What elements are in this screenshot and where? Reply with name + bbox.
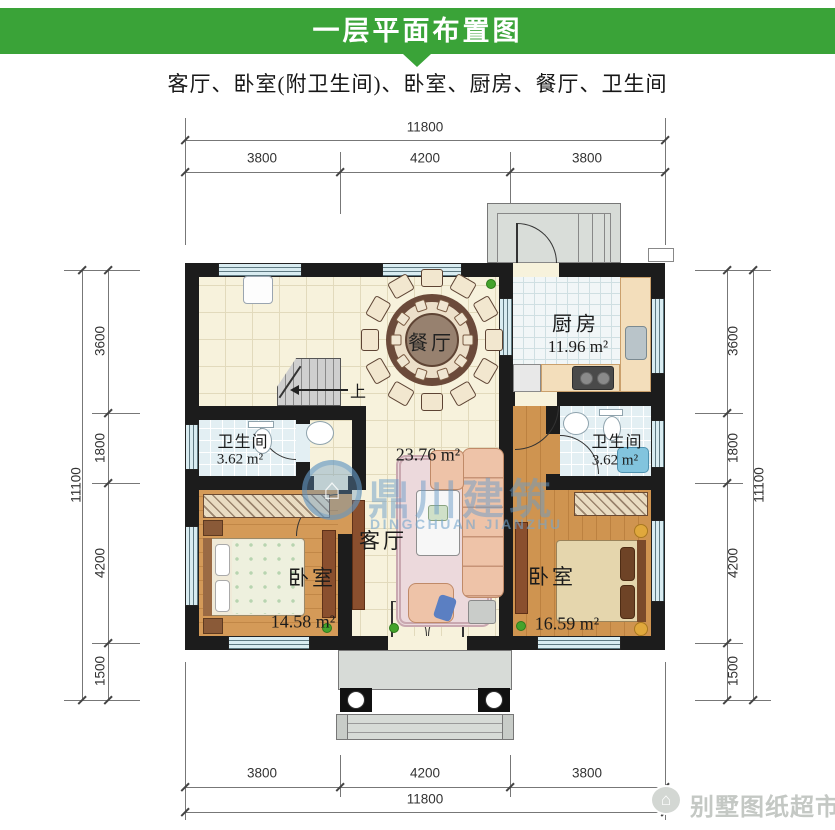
window xyxy=(651,298,665,374)
corner-pad xyxy=(648,248,674,262)
dim-witness xyxy=(340,755,341,797)
subtitle: 客厅、卧室(附卫生间)、卧室、厨房、餐厅、卫生间 xyxy=(0,68,835,98)
porch-rail xyxy=(336,714,348,740)
bed-headboard xyxy=(637,540,646,622)
door-opening xyxy=(513,263,559,277)
floor-plan-page: 一层平面布置图 客厅、卧室(附卫生间)、卧室、厨房、餐厅、卫生间 11800 3… xyxy=(0,0,835,830)
dim-total-right: 11100 xyxy=(752,467,767,503)
dim-seg: 3800 xyxy=(247,766,277,781)
dim-witness xyxy=(185,662,186,820)
dim-witness xyxy=(64,700,140,701)
dim-witness xyxy=(695,643,743,644)
table-plate xyxy=(463,335,474,346)
dining-chair xyxy=(485,329,503,351)
dim-line xyxy=(185,172,665,173)
dim-witness xyxy=(695,700,771,701)
door-leaf xyxy=(516,223,518,263)
porch-steps xyxy=(346,714,504,740)
dim-witness xyxy=(510,152,511,204)
dim-line xyxy=(108,270,109,700)
table-plate xyxy=(391,335,402,346)
dining-chair xyxy=(361,329,379,351)
dim-total-bottom: 11800 xyxy=(407,792,444,807)
porch-rail xyxy=(502,714,514,740)
room-area-living: 23.76 m² xyxy=(396,445,460,466)
dim-line xyxy=(185,140,665,141)
dim-witness xyxy=(64,270,140,271)
wall xyxy=(185,406,366,420)
banner-pointer xyxy=(403,54,431,67)
toilet-tank xyxy=(248,421,274,428)
water-heater xyxy=(243,276,273,304)
plant-icon xyxy=(389,623,399,633)
window xyxy=(228,636,310,650)
dining-chair xyxy=(421,393,443,411)
dim-seg: 4200 xyxy=(410,151,440,166)
pillow xyxy=(215,580,230,612)
dim-seg: 1800 xyxy=(93,433,108,463)
pillow xyxy=(215,544,230,576)
pillow xyxy=(620,547,635,581)
nightstand xyxy=(203,618,223,634)
room-area-kitchen: 11.96 m² xyxy=(548,337,608,357)
page-title: 一层平面布置图 xyxy=(0,8,835,54)
window xyxy=(537,636,621,650)
bed-lamp xyxy=(634,524,648,538)
bed-headboard xyxy=(203,538,212,616)
watermark-en: DINGCHUAN JIANZHU xyxy=(370,516,563,532)
dim-total-left: 11100 xyxy=(69,467,84,503)
dim-witness xyxy=(340,152,341,214)
room-label-bath-left: 卫生间 xyxy=(217,428,268,452)
dim-seg: 4200 xyxy=(93,548,108,578)
dim-line xyxy=(185,812,665,813)
room-area-bath-left: 3.62 m² xyxy=(217,452,263,469)
dim-seg: 3800 xyxy=(572,766,602,781)
porch-column xyxy=(347,691,365,709)
top-porch-step xyxy=(578,213,579,263)
stairs-up-arrow-line xyxy=(298,389,348,391)
wardrobe xyxy=(574,492,648,516)
door-opening xyxy=(388,636,467,650)
stairs-up-label: 上 xyxy=(350,378,366,402)
dim-witness xyxy=(695,270,771,271)
stove-burner xyxy=(597,372,610,385)
dim-witness xyxy=(92,483,140,484)
dim-witness xyxy=(92,413,140,414)
stove-burner xyxy=(580,372,593,385)
bath-sink xyxy=(306,421,334,445)
top-porch-step xyxy=(592,213,593,263)
bottom-porch xyxy=(338,650,512,690)
fridge xyxy=(513,364,541,392)
porch-column xyxy=(485,691,503,709)
window xyxy=(185,526,199,606)
plant-icon xyxy=(486,279,496,289)
dim-seg: 3600 xyxy=(726,326,741,356)
dim-seg: 4200 xyxy=(726,548,741,578)
window xyxy=(651,420,665,468)
bed-lamp xyxy=(634,622,648,636)
room-label-kitchen: 厨房 xyxy=(552,308,600,337)
room-area-bedroom-left: 14.58 m² xyxy=(271,612,335,633)
house-badge-icon: ⌂ xyxy=(650,785,682,815)
dim-seg: 3600 xyxy=(93,326,108,356)
room-label-bath-right: 卫生间 xyxy=(591,428,642,452)
wall xyxy=(546,476,665,490)
window xyxy=(218,263,302,277)
dim-seg: 1500 xyxy=(726,656,741,686)
dim-seg: 4200 xyxy=(410,766,440,781)
pillow xyxy=(620,585,635,619)
side-table xyxy=(468,600,496,624)
bath-sink xyxy=(563,412,589,435)
tv-cabinet xyxy=(515,522,528,614)
dim-seg: 3800 xyxy=(572,151,602,166)
dim-seg: 1800 xyxy=(726,433,741,463)
room-label-bedroom-left: 卧室 xyxy=(288,562,336,592)
nightstand xyxy=(203,520,223,536)
dim-seg: 3800 xyxy=(247,151,277,166)
room-area-bedroom-right: 16.59 m² xyxy=(535,614,599,635)
door-opening xyxy=(515,392,557,406)
dim-witness xyxy=(92,643,140,644)
house-logo-icon: ⌂ xyxy=(302,460,362,520)
window xyxy=(185,424,199,470)
room-area-bath-right: 3.62 m² xyxy=(592,453,638,470)
room-label-dining: 餐厅 xyxy=(408,327,454,356)
dining-chair xyxy=(421,269,443,287)
kitchen-sink xyxy=(625,326,647,360)
room-label-bedroom-right: 卧室 xyxy=(528,561,576,591)
dim-witness xyxy=(695,483,743,484)
brand-text: 别墅图纸超市 xyxy=(690,787,835,822)
toilet-tank xyxy=(599,409,623,416)
dim-total-top: 11800 xyxy=(407,120,444,135)
plant-icon xyxy=(516,621,526,631)
dim-line xyxy=(185,787,665,788)
dim-witness xyxy=(695,413,743,414)
top-porch-step xyxy=(604,213,605,263)
dim-seg: 1500 xyxy=(93,656,108,686)
dim-witness xyxy=(510,755,511,797)
window xyxy=(651,520,665,602)
tv-cabinet xyxy=(352,500,365,610)
